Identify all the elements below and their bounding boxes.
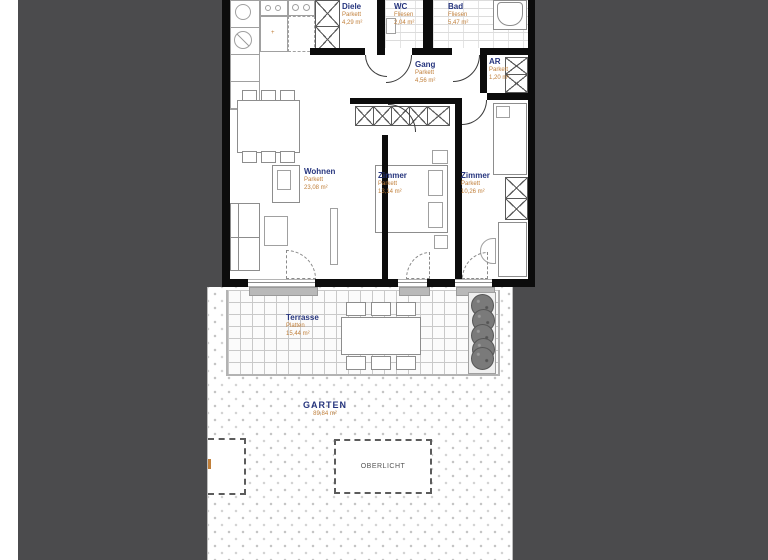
door-arc-diele: [365, 55, 387, 77]
kitchen-cabinet: [315, 0, 340, 27]
pillow: [496, 106, 510, 118]
pillow: [428, 202, 443, 228]
room-label-zimmer1: Zimmer Parkett 13,14 m²: [378, 171, 407, 196]
terrace-chair: [346, 356, 366, 370]
chair: [261, 151, 276, 163]
room-label-zimmer2: Zimmer Parkett 10,26 m²: [461, 171, 490, 196]
room-label-ar: AR Parkett 1,20 m²: [489, 57, 509, 82]
garden-area: Terrasse Platten 15,44 m² GARTEN 89,84 m…: [207, 287, 513, 560]
terrace-chair: [371, 356, 391, 370]
tap-icon: [265, 5, 271, 11]
dining-table: [237, 100, 300, 153]
door-arc-terrace-zimmer1: [406, 252, 430, 279]
wall-zimmer1-top: [350, 98, 460, 104]
wall-diele-wc: [377, 0, 385, 55]
nightstand: [434, 235, 448, 249]
bathtub-basin: [497, 2, 523, 26]
room-label-wohnen: Wohnen Parkett 23,08 m²: [304, 167, 335, 192]
wall-wc-bad: [423, 0, 433, 48]
skylight-label: OBERLICHT: [361, 463, 406, 470]
wall-diele-bottom: [310, 48, 365, 55]
skylight-outline: OBERLICHT: [334, 439, 432, 494]
skylight-outline-partial: [208, 438, 246, 495]
terrace-chair: [396, 302, 416, 316]
terrace-chair: [371, 302, 391, 316]
wardrobe: [505, 198, 528, 220]
page-margin-strip: [0, 0, 18, 560]
door-arc-terrace-wohnen: [286, 250, 316, 279]
window-sill: [249, 287, 318, 296]
wall-wohnen-zimmer1: [382, 135, 388, 280]
door-arc-bad: [453, 55, 480, 82]
coffee-table: [264, 216, 288, 246]
door-arc-terrace-zimmer2: [462, 252, 488, 279]
room-label-bad: Bad Fliesen 5,47 m²: [448, 2, 468, 27]
terrace-table: [341, 317, 421, 355]
chair: [280, 151, 295, 163]
tap-icon: [275, 5, 281, 11]
wardrobe: [505, 177, 528, 199]
door-arc-zimmer2: [462, 100, 487, 125]
room-label-wc: WC Fliesen 2,04 m²: [394, 2, 414, 27]
wardrobe: [355, 106, 374, 126]
chair: [242, 151, 257, 163]
wall-ar-bottom: [487, 93, 528, 100]
sink-icon: [234, 31, 252, 49]
wardrobe: [427, 106, 450, 126]
sink-bowl-icon: [292, 4, 299, 11]
window-sill: [399, 287, 430, 296]
terrace-chair: [346, 302, 366, 316]
terrace-door-window: [455, 279, 492, 287]
plan-marker: [208, 459, 211, 469]
room-label-diele: Diele Parkett 4,29 m²: [342, 2, 362, 27]
tv-board-inner: [277, 170, 291, 190]
wall-gang-top: [412, 48, 452, 55]
room-label-gang: Gang Parkett 4,56 m²: [415, 60, 435, 85]
sideboard: [330, 208, 338, 265]
terrace-door-window: [398, 279, 427, 287]
outer-wall-left: [222, 0, 230, 287]
stove-burner-icon: [235, 4, 251, 20]
wall-bad-bottom: [480, 48, 528, 55]
outer-wall-right: [528, 0, 535, 287]
door-arc-wc: [386, 55, 412, 83]
floor-plan-apartment: +: [222, 0, 535, 287]
room-label-terrasse: Terrasse Platten 15,44 m²: [286, 313, 319, 338]
nightstand: [432, 150, 448, 164]
sink-bowl-icon: [303, 4, 310, 11]
bush-icon: [471, 347, 494, 370]
wall-ar-left: [480, 55, 487, 93]
desk: [498, 222, 527, 277]
terrace-window: [248, 279, 315, 287]
oven: [288, 16, 315, 52]
terrace-chair: [396, 356, 416, 370]
counter-mark: +: [271, 30, 275, 36]
sofa: [230, 203, 260, 271]
pillow: [428, 170, 443, 196]
room-label-garten: GARTEN 89,84 m²: [303, 400, 347, 419]
